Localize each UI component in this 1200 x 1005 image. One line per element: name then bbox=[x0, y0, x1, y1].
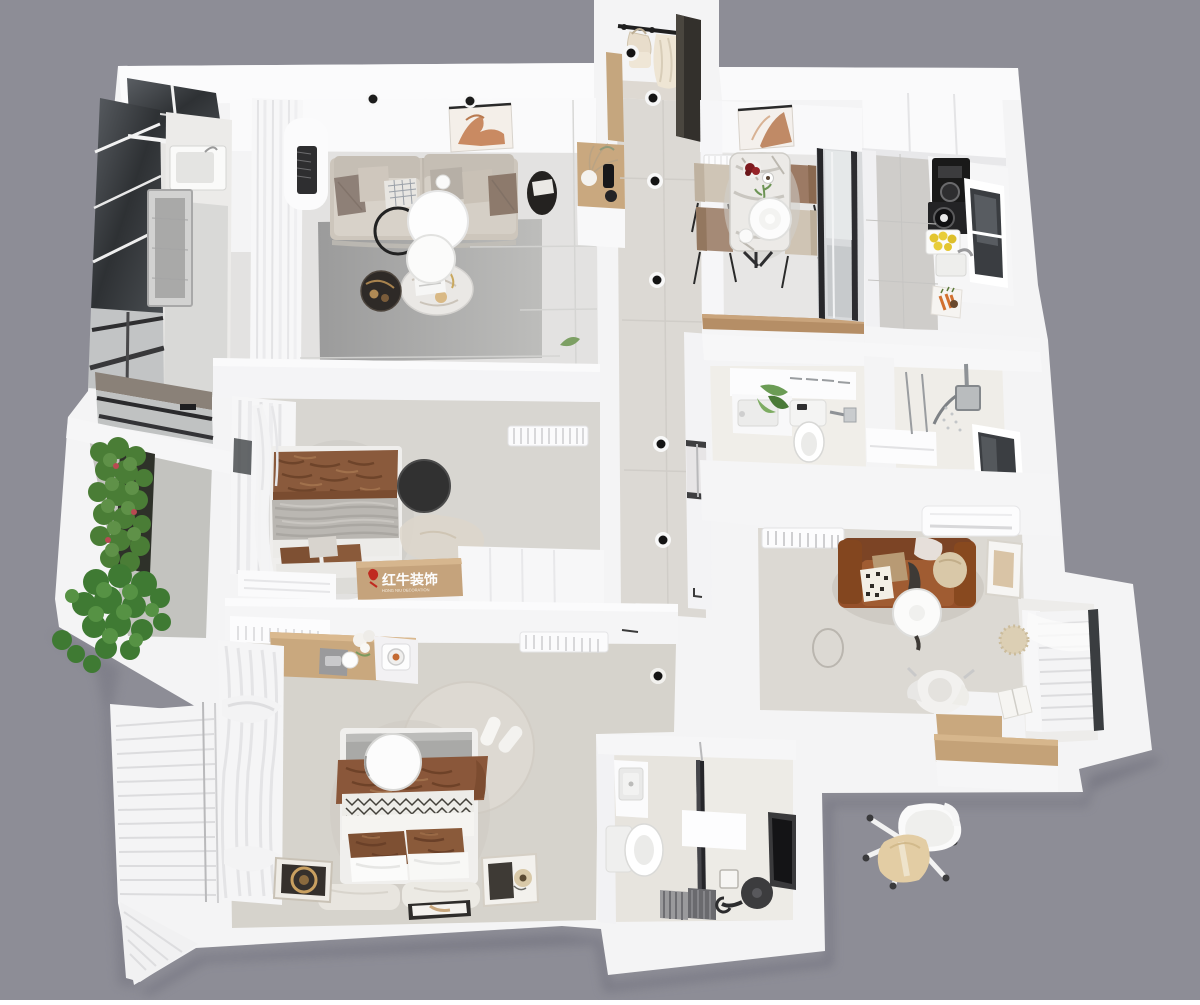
svg-text:HONG NIU DECORATION: HONG NIU DECORATION bbox=[382, 587, 430, 593]
svg-text:红牛装饰: 红牛装饰 bbox=[382, 571, 438, 588]
